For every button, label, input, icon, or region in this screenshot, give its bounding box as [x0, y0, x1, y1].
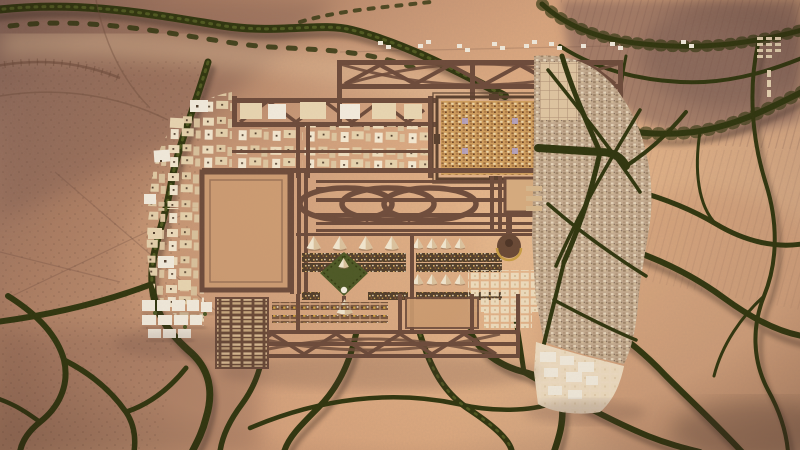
lighting-overlays [0, 0, 800, 450]
aerial-photo [0, 0, 800, 450]
aerial-photo-canvas [0, 0, 800, 450]
